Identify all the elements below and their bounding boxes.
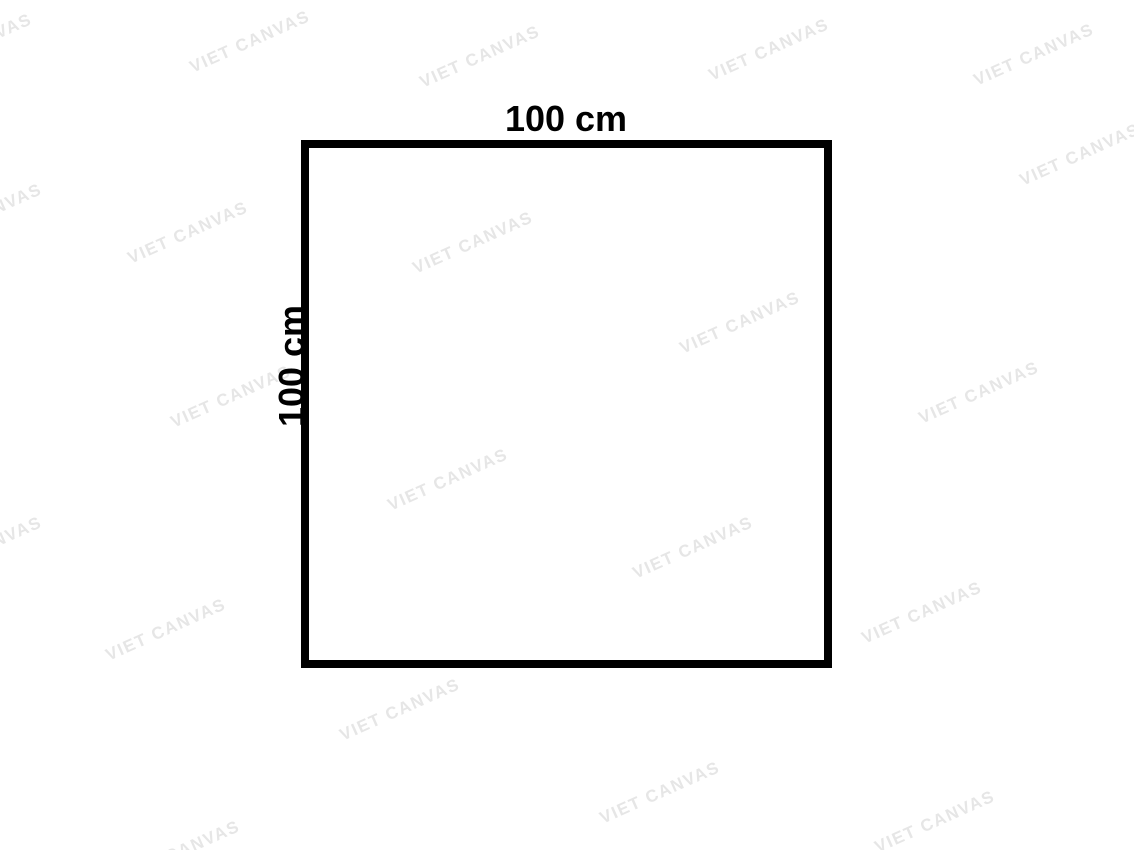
watermark-text: VIET CANVAS bbox=[417, 22, 543, 93]
watermark-text: VIET CANVAS bbox=[706, 15, 832, 86]
watermark-text: VIET CANVAS bbox=[1017, 120, 1134, 191]
watermark-text: VIET CANVAS bbox=[187, 7, 313, 78]
watermark-text: VIET CANVAS bbox=[971, 20, 1097, 91]
watermark-text: VIET CANVAS bbox=[117, 817, 243, 850]
watermark-text: VIET CANVAS bbox=[597, 758, 723, 829]
watermark-text: VIET CANVAS bbox=[872, 787, 998, 850]
watermark-text: VIET CANVAS bbox=[103, 595, 229, 666]
top-dimension-label: 100 cm bbox=[505, 101, 627, 137]
watermark-text: VIET CANVAS bbox=[125, 198, 251, 269]
watermark-text: VIET CANVAS bbox=[337, 675, 463, 746]
watermark-text: VIET CANVAS bbox=[0, 180, 45, 251]
square-shape bbox=[301, 140, 832, 668]
watermark-text: VIET CANVAS bbox=[0, 10, 35, 81]
left-dimension-label: 100 cm bbox=[274, 305, 310, 427]
diagram-canvas: VIET CANVASVIET CANVASVIET CANVASVIET CA… bbox=[0, 0, 1134, 850]
watermark-text: VIET CANVAS bbox=[0, 513, 45, 584]
watermark-text: VIET CANVAS bbox=[859, 578, 985, 649]
watermark-text: VIET CANVAS bbox=[916, 358, 1042, 429]
